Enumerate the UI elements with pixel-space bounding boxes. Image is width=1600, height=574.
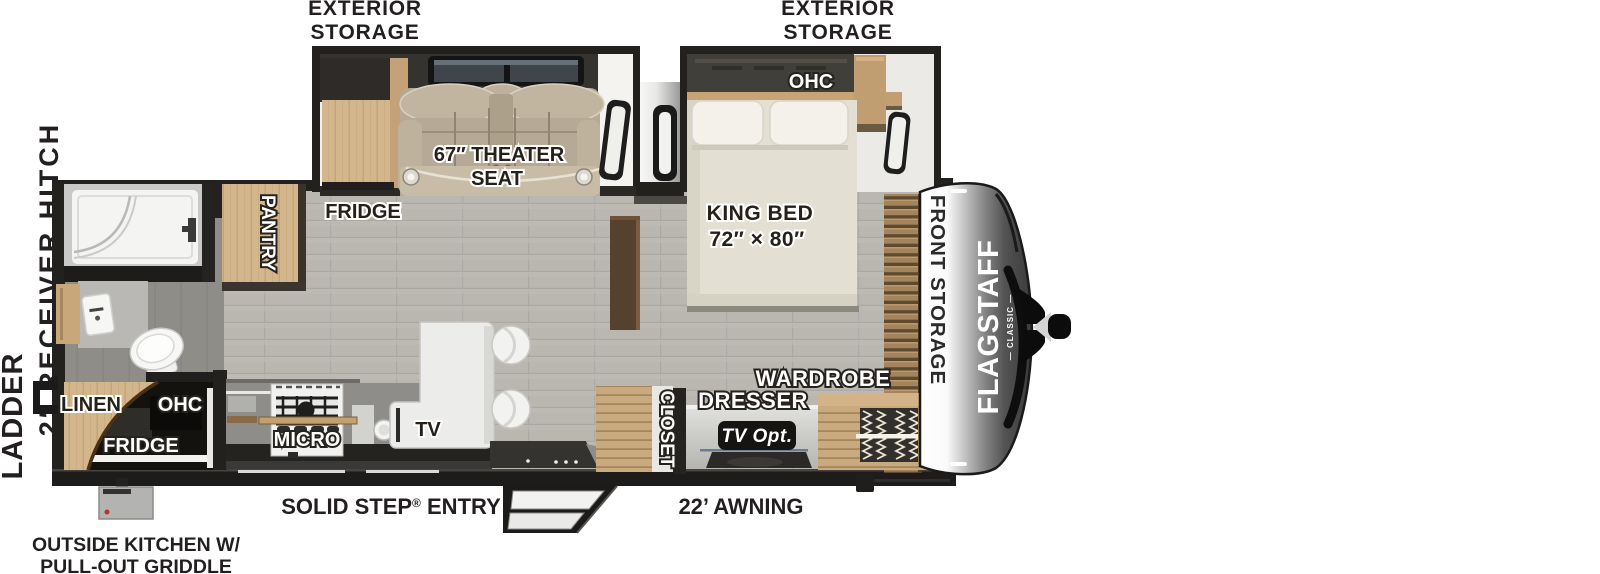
svg-text:OHC: OHC	[158, 394, 202, 416]
svg-text:FRIDGE: FRIDGE	[325, 201, 401, 223]
svg-text:CLOSET: CLOSET	[656, 390, 677, 467]
svg-text:STORAGE: STORAGE	[783, 21, 892, 44]
svg-text:PULL-OUT GRIDDLE: PULL-OUT GRIDDLE	[40, 556, 232, 574]
svg-text:— CLASSIC —: — CLASSIC —	[1006, 294, 1015, 361]
svg-text:FRONT STORAGE: FRONT STORAGE	[926, 195, 949, 385]
svg-text:OHC: OHC	[789, 71, 833, 93]
svg-text:EXTERIOR: EXTERIOR	[781, 0, 895, 20]
svg-text:LINEN: LINEN	[61, 394, 121, 416]
svg-text:STORAGE: STORAGE	[310, 21, 419, 44]
svg-text:MICRO: MICRO	[274, 429, 341, 451]
svg-text:TV Opt.: TV Opt.	[721, 426, 792, 447]
svg-text:SOLID STEP® ENTRY: SOLID STEP® ENTRY	[281, 494, 501, 519]
svg-text:72″ × 80″: 72″ × 80″	[709, 228, 804, 251]
svg-text:OUTSIDE KITCHEN W/: OUTSIDE KITCHEN W/	[32, 534, 241, 556]
svg-text:FLAGSTAFF: FLAGSTAFF	[973, 240, 1005, 415]
svg-text:KING BED: KING BED	[707, 202, 814, 225]
svg-text:PANTRY: PANTRY	[257, 195, 278, 271]
svg-text:67″ THEATER: 67″ THEATER	[434, 144, 565, 166]
svg-text:WARDROBE: WARDROBE	[756, 366, 891, 391]
svg-text:FRIDGE: FRIDGE	[103, 435, 179, 457]
svg-text:22’ AWNING: 22’ AWNING	[678, 494, 803, 519]
svg-text:LADDER: LADDER	[0, 353, 29, 480]
svg-text:EXTERIOR: EXTERIOR	[308, 0, 422, 20]
svg-text:SEAT: SEAT	[471, 168, 523, 190]
svg-text:TV: TV	[415, 419, 441, 441]
svg-text:DRESSER: DRESSER	[698, 388, 808, 413]
